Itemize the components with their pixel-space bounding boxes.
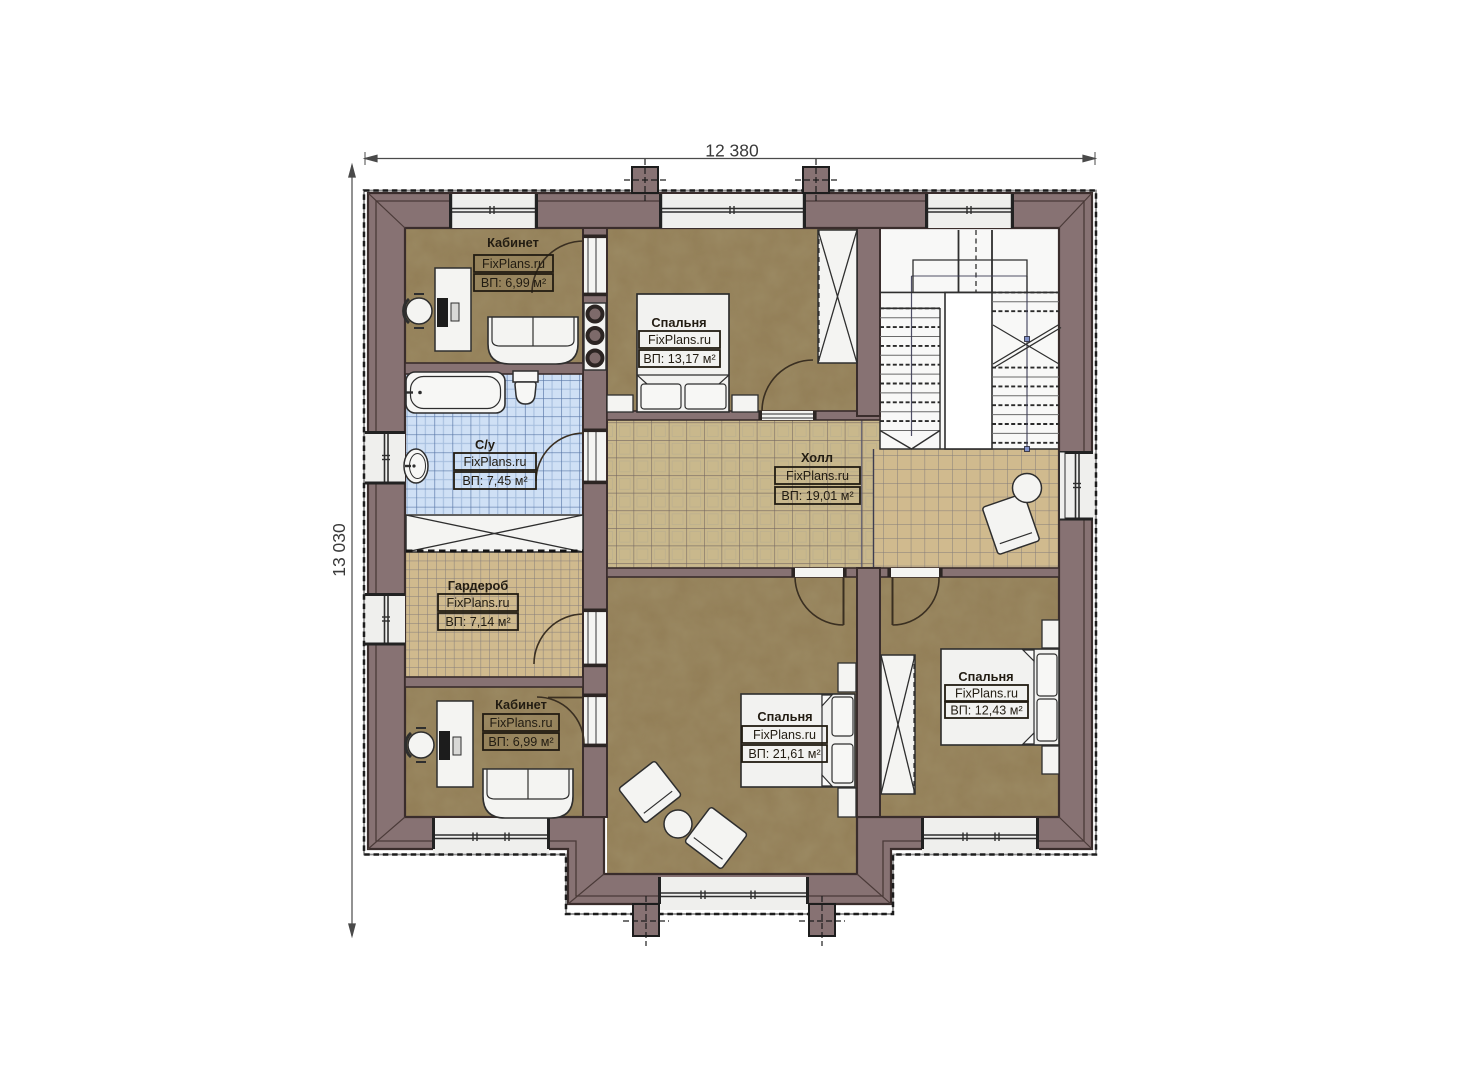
svg-text:Спальня: Спальня bbox=[958, 669, 1013, 684]
svg-text:Спальня: Спальня bbox=[757, 709, 812, 724]
svg-text:ВП: 13,17 м²: ВП: 13,17 м² bbox=[643, 352, 715, 366]
svg-text:ВП: 6,99 м²: ВП: 6,99 м² bbox=[481, 276, 546, 290]
svg-text:FixPlans.ru: FixPlans.ru bbox=[753, 728, 816, 742]
svg-text:12 380: 12 380 bbox=[705, 141, 759, 161]
svg-text:Гардероб: Гардероб bbox=[448, 578, 509, 593]
svg-text:ВП: 7,45 м²: ВП: 7,45 м² bbox=[462, 474, 527, 488]
svg-text:С/у: С/у bbox=[475, 437, 496, 452]
svg-text:ВП: 12,43 м²: ВП: 12,43 м² bbox=[950, 704, 1022, 718]
svg-text:Кабинет: Кабинет bbox=[487, 235, 539, 250]
svg-text:FixPlans.ru: FixPlans.ru bbox=[955, 687, 1018, 701]
svg-text:ВП: 7,14 м²: ВП: 7,14 м² bbox=[445, 615, 510, 629]
svg-text:FixPlans.ru: FixPlans.ru bbox=[447, 596, 510, 610]
svg-text:FixPlans.ru: FixPlans.ru bbox=[786, 469, 849, 483]
svg-text:FixPlans.ru: FixPlans.ru bbox=[482, 257, 545, 271]
svg-text:FixPlans.ru: FixPlans.ru bbox=[648, 333, 711, 347]
svg-text:ВП: 19,01 м²: ВП: 19,01 м² bbox=[781, 489, 853, 503]
svg-text:FixPlans.ru: FixPlans.ru bbox=[490, 716, 553, 730]
svg-text:13 030: 13 030 bbox=[329, 523, 349, 577]
svg-text:Холл: Холл bbox=[801, 450, 833, 465]
svg-text:ВП: 6,99 м²: ВП: 6,99 м² bbox=[488, 735, 553, 749]
svg-text:ВП: 21,61 м²: ВП: 21,61 м² bbox=[748, 747, 820, 761]
svg-text:FixPlans.ru: FixPlans.ru bbox=[464, 455, 527, 469]
svg-text:Спальня: Спальня bbox=[651, 315, 706, 330]
svg-text:Кабинет: Кабинет bbox=[495, 697, 547, 712]
